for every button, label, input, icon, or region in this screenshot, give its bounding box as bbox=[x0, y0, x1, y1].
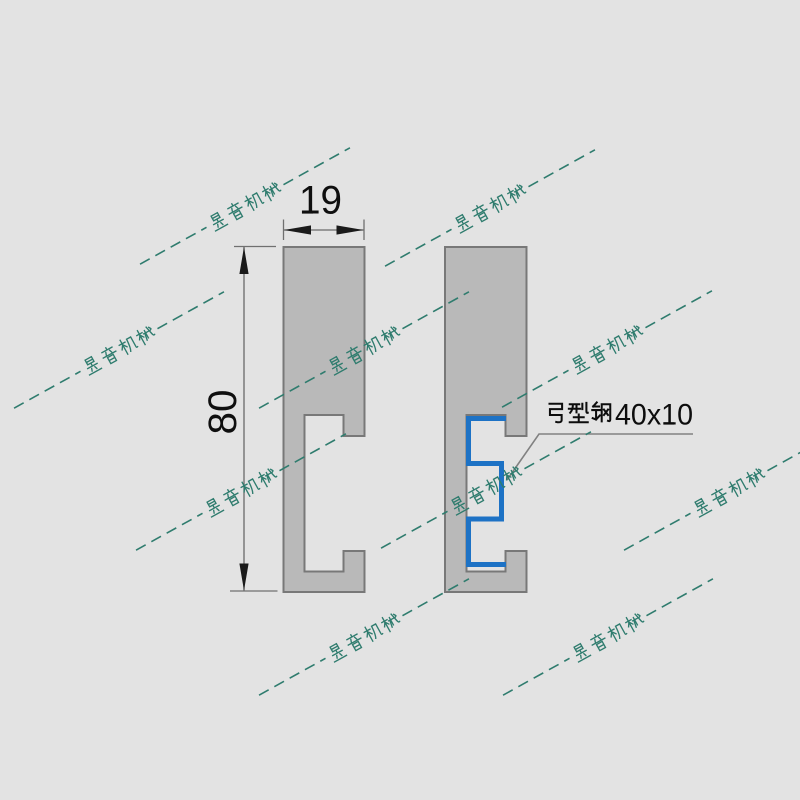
svg-text:19: 19 bbox=[299, 179, 342, 223]
svg-text:80: 80 bbox=[201, 390, 245, 435]
svg-text:40x10: 40x10 bbox=[615, 399, 693, 432]
